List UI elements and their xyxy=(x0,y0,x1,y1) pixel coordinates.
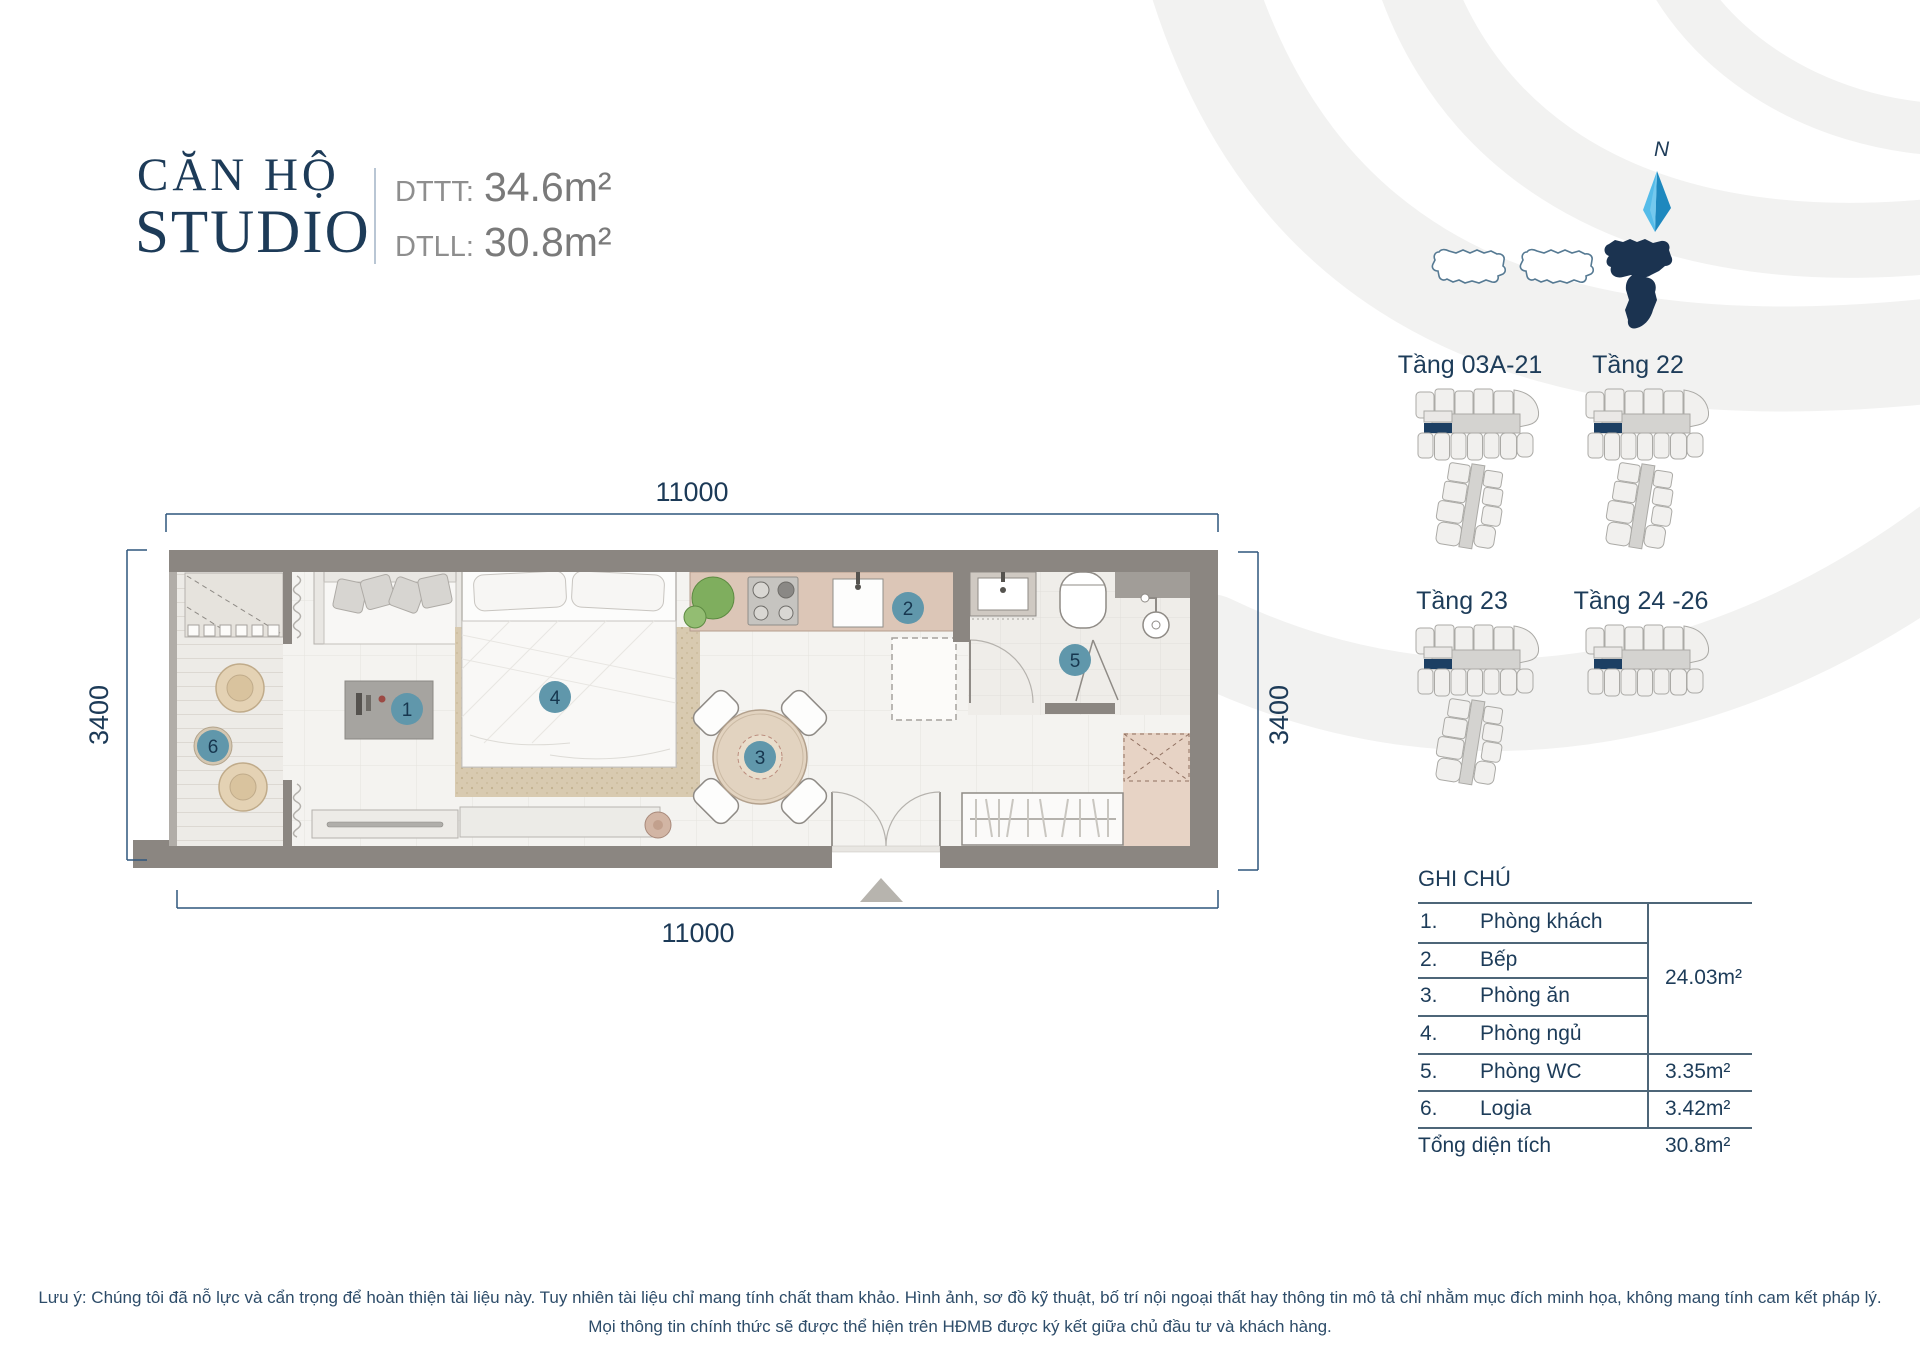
disclaimer: Lưu ý: Chúng tôi đã nỗ lực và cẩn trọng … xyxy=(0,1283,1920,1341)
legend-row: 5. Phòng WC xyxy=(1418,1053,1646,1090)
dim-top-label: 11000 xyxy=(655,477,728,507)
marker-bedroom: 4 xyxy=(539,681,571,713)
legend-table: 1. Phòng khách 2. Bếp 3. Phòng ăn 4. Phò… xyxy=(1418,902,1752,1165)
site-building-outline-2 xyxy=(1520,250,1593,283)
disclaimer-line1: Lưu ý: Chúng tôi đã nỗ lực và cẩn trọng … xyxy=(0,1283,1920,1312)
marker-kitchen: 2 xyxy=(892,592,924,624)
marker-dining: 3 xyxy=(744,741,776,773)
floor-plate-24-26 xyxy=(1582,618,1714,702)
logia-ledge xyxy=(185,573,283,637)
legend-row: 3. Phòng ăn xyxy=(1418,977,1646,1015)
floor-label-22: Tầng 22 xyxy=(1543,351,1733,380)
sofa xyxy=(314,568,466,644)
site-building-outline-1 xyxy=(1432,250,1505,283)
legend-row: 4. Phòng ngủ xyxy=(1418,1015,1646,1053)
floor-plate-22 xyxy=(1582,382,1714,562)
svg-text:6: 6 xyxy=(208,737,219,758)
dim-right-label: 3400 xyxy=(1264,685,1294,745)
dtll-label: DTLL: xyxy=(395,231,474,264)
toilet-icon xyxy=(1060,572,1106,628)
legend-row-no: 3. xyxy=(1418,984,1480,1008)
legend-row-no: 4. xyxy=(1418,1022,1480,1046)
floor-plate-03a-21 xyxy=(1412,382,1544,562)
legend-total-label: Tổng diện tích xyxy=(1418,1127,1647,1165)
tv-console xyxy=(312,810,458,838)
page: CĂN HỘ STUDIO DTTT: 34.6m² DTLL: 30.8m² … xyxy=(0,0,1920,1357)
logia-armchair-bottom xyxy=(219,763,267,811)
legend-row-name: Phòng ăn xyxy=(1480,984,1570,1008)
marker-living-room: 1 xyxy=(391,693,423,725)
svg-text:5: 5 xyxy=(1070,651,1081,672)
kitchen-counter xyxy=(684,572,965,631)
sink-icon xyxy=(833,572,883,627)
dtll-value: 30.8m² xyxy=(484,219,612,266)
north-label: N xyxy=(1654,138,1669,162)
dttt-label: DTTT: xyxy=(395,176,474,209)
north-arrow-icon xyxy=(1641,170,1673,234)
legend-row-no: 6. xyxy=(1418,1097,1480,1121)
floor-label-23: Tầng 23 xyxy=(1367,587,1557,616)
site-plan xyxy=(1425,228,1685,340)
legend-title: GHI CHÚ xyxy=(1418,866,1511,892)
floor-plan: 11000 11000 3400 3400 1 2 3 4 xyxy=(80,435,1310,965)
legend-row: 1. Phòng khách xyxy=(1418,902,1646,942)
bath-duct xyxy=(1115,572,1190,598)
dim-left-label: 3400 xyxy=(84,685,114,745)
marker-logia: 6 xyxy=(197,730,229,762)
legend-row-name: Logia xyxy=(1480,1097,1531,1121)
dttt-value: 34.6m² xyxy=(484,164,612,211)
legend-area-wc: 3.35m² xyxy=(1665,1053,1730,1090)
apartment-type-title-line1: CĂN HỘ xyxy=(137,148,340,202)
site-building-highlighted xyxy=(1605,239,1673,329)
legend-area-logia: 3.42m² xyxy=(1665,1090,1730,1127)
svg-text:2: 2 xyxy=(903,599,914,620)
legend-row: 2. Bếp xyxy=(1418,942,1646,977)
stove-icon xyxy=(748,577,798,625)
legend-row-no: 1. xyxy=(1418,910,1480,934)
floor-plate-23 xyxy=(1412,618,1544,798)
logia-armchair-top xyxy=(216,664,264,712)
area-dtll-row: DTLL: 30.8m² xyxy=(395,219,612,266)
legend-row-name: Bếp xyxy=(1480,948,1517,972)
bed-bench xyxy=(460,807,671,838)
floor-label-03a-21: Tầng 03A-21 xyxy=(1375,351,1565,380)
fridge-space xyxy=(892,638,956,720)
entry-arrow xyxy=(860,878,903,902)
legend-row-name: Phòng ngủ xyxy=(1480,1022,1582,1046)
legend-row-name: Phòng khách xyxy=(1480,910,1603,934)
legend-total-value: 30.8m² xyxy=(1665,1127,1730,1165)
legend-row-no: 5. xyxy=(1418,1060,1480,1084)
dim-bottom-label: 11000 xyxy=(661,918,734,948)
bed xyxy=(462,553,676,767)
legend-group-area: 24.03m² xyxy=(1665,902,1742,1053)
svg-text:4: 4 xyxy=(550,688,561,709)
marker-wc: 5 xyxy=(1059,644,1091,676)
svg-text:1: 1 xyxy=(402,700,413,721)
title-divider xyxy=(374,168,376,264)
disclaimer-line2: Mọi thông tin chính thức sẽ được thể hiệ… xyxy=(0,1312,1920,1341)
apartment-type-title-line2: STUDIO xyxy=(135,198,371,268)
legend-row: 6. Logia xyxy=(1418,1090,1646,1127)
svg-text:3: 3 xyxy=(755,748,766,769)
floor-label-24-26: Tầng 24 -26 xyxy=(1546,587,1736,616)
legend-row-name: Phòng WC xyxy=(1480,1060,1582,1084)
wardrobe xyxy=(962,793,1123,845)
area-dttt-row: DTTT: 34.6m² xyxy=(395,164,612,211)
vanity-sink-icon xyxy=(970,572,1036,616)
legend-row-no: 2. xyxy=(1418,948,1480,972)
